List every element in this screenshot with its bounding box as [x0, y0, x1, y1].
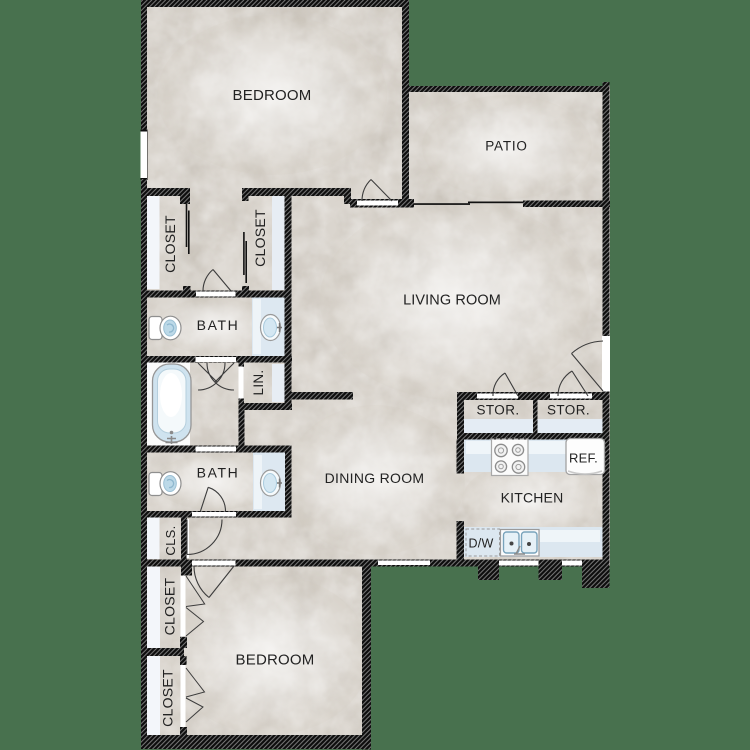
svg-text:BATH: BATH	[197, 465, 240, 481]
svg-text:KITCHEN: KITCHEN	[501, 490, 564, 506]
svg-text:CLOSET: CLOSET	[252, 209, 268, 267]
svg-text:BEDROOM: BEDROOM	[233, 87, 312, 104]
svg-text:CLOSET: CLOSET	[162, 577, 178, 635]
svg-text:D/W: D/W	[469, 537, 494, 551]
svg-text:PATIO: PATIO	[485, 139, 528, 154]
svg-text:STOR.: STOR.	[476, 403, 519, 418]
svg-text:STOR.: STOR.	[547, 403, 590, 418]
svg-text:LIVING ROOM: LIVING ROOM	[403, 293, 501, 309]
svg-text:LIN.: LIN.	[251, 370, 266, 396]
svg-text:CLS.: CLS.	[163, 525, 178, 555]
svg-text:BEDROOM: BEDROOM	[236, 652, 315, 669]
svg-text:DINING ROOM: DINING ROOM	[325, 470, 425, 486]
svg-text:REF.: REF.	[569, 451, 598, 466]
svg-text:CLOSET: CLOSET	[162, 215, 178, 273]
svg-text:CLOSET: CLOSET	[160, 669, 176, 727]
svg-text:BATH: BATH	[197, 317, 240, 333]
